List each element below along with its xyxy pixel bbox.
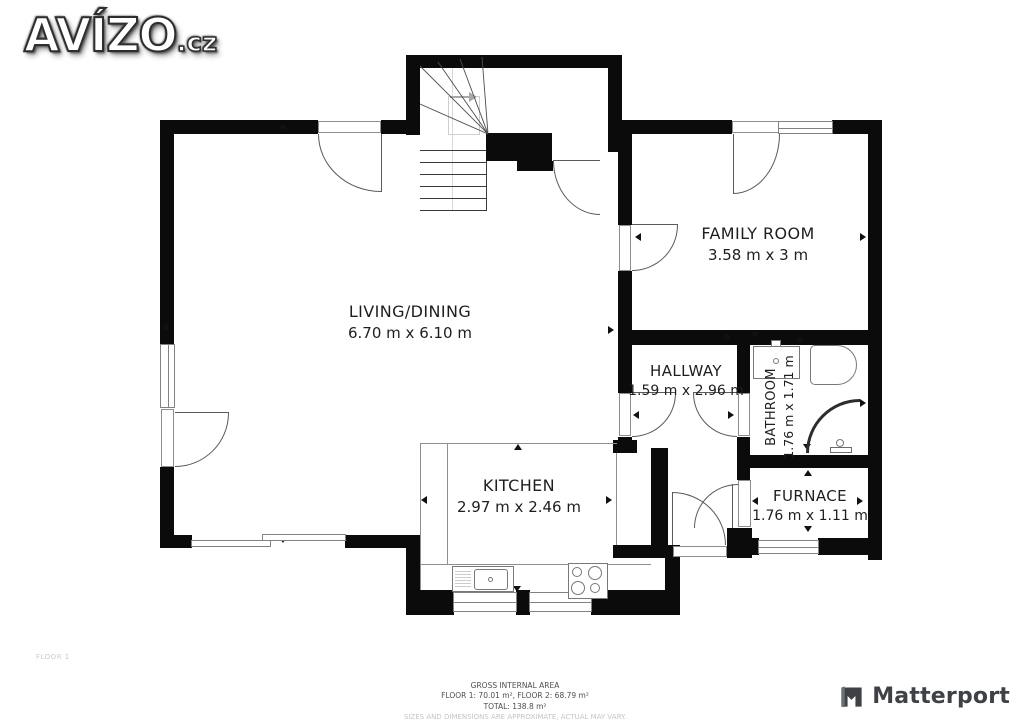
stove-burner [590, 583, 600, 593]
avizo-logo-text: AVÍZO [24, 8, 177, 62]
wall-segment [618, 120, 732, 134]
shower-door-arc [806, 399, 860, 453]
closet-wall [613, 545, 673, 558]
door-swing-arc [632, 393, 676, 437]
room-label-family: FAMILY ROOM 3.58 m x 3 m [608, 224, 908, 264]
stove-burner [588, 566, 602, 580]
dimension-marker [608, 326, 614, 334]
wall-segment [618, 330, 868, 345]
wall-segment [160, 120, 174, 344]
area-title: GROSS INTERNAL AREA [315, 681, 715, 690]
matterport-m-icon [838, 683, 865, 710]
faucet-knob-icon [836, 439, 844, 447]
window-sliding [191, 540, 271, 547]
closet-wall [613, 440, 637, 453]
matterport-logo: Matterport [838, 683, 1010, 710]
door-opening [673, 546, 727, 557]
wall-segment [160, 535, 192, 548]
dimension-marker [723, 333, 731, 339]
dimension-marker [279, 123, 287, 129]
room-name: FURNACE [660, 487, 960, 505]
avizo-logo-suffix: .cz [177, 28, 217, 58]
room-dims: 3.58 m x 3 m [608, 246, 908, 264]
window [160, 344, 175, 408]
area-total: TOTAL: 138.8 m² [315, 702, 715, 711]
stairs-winder-icon [420, 56, 520, 216]
dimension-marker [514, 444, 522, 450]
room-label-bathroom: BATHROOM 1.76 m x 1.71 m [750, 342, 810, 472]
dimension-marker [860, 399, 866, 407]
room-dims: 2.97 m x 2.46 m [369, 498, 669, 516]
door-swing-arc [693, 393, 737, 437]
window-sliding [262, 534, 346, 541]
drainboard-icon [455, 569, 471, 589]
wall-segment [517, 161, 553, 171]
dimension-marker [751, 332, 759, 338]
avizo-logo: AVÍZO.cz [24, 8, 217, 62]
room-name: BATHROOM [764, 342, 779, 472]
dimension-marker [162, 323, 168, 331]
area-floors: FLOOR 1: 70.01 m², FLOOR 2: 68.79 m² [315, 691, 715, 700]
sink-drain-icon [488, 577, 493, 582]
door-opening [318, 121, 381, 133]
counter-edge [420, 564, 651, 565]
room-label-kitchen: KITCHEN 2.97 m x 2.46 m [369, 476, 669, 516]
area-disclaimer: SIZES AND DIMENSIONS ARE APPROXIMATE, AC… [315, 713, 715, 722]
door-opening [619, 393, 631, 436]
window [778, 121, 833, 134]
wall-segment [516, 590, 530, 615]
room-name: LIVING/DINING [260, 302, 560, 321]
wall-segment [737, 538, 759, 555]
stove-burner [572, 567, 582, 577]
room-dims: 6.70 m x 6.10 m [260, 324, 560, 342]
door-opening [738, 393, 750, 436]
window [758, 540, 819, 554]
door-swing-arc [318, 134, 381, 192]
gross-area-block: GROSS INTERNAL AREA FLOOR 1: 70.01 m², F… [315, 681, 715, 722]
wall-segment [618, 120, 632, 225]
room-label-living: LIVING/DINING 6.70 m x 6.10 m [260, 302, 560, 342]
wall-segment [160, 120, 318, 134]
window [453, 592, 517, 612]
dimension-marker [804, 526, 812, 532]
door-opening [161, 409, 174, 467]
room-name: KITCHEN [369, 476, 669, 495]
room-name: FAMILY ROOM [608, 224, 908, 243]
wall-segment [406, 590, 454, 615]
wall-segment [818, 538, 882, 555]
door-swing-arc [553, 161, 600, 215]
stove-burner [571, 581, 585, 595]
floorplan-canvas: LIVING/DINING 6.70 m x 6.10 m FAMILY ROO… [0, 0, 1024, 724]
kitchen-zone-line [420, 443, 421, 590]
door-swing-arc [175, 413, 229, 467]
room-dims: 1.76 m x 1.71 m [781, 342, 796, 472]
door-swing-arc [733, 134, 780, 194]
matterport-label: Matterport [872, 684, 1010, 709]
faucet-icon [830, 447, 852, 453]
room-dims: 1.76 m x 1.11 m [660, 508, 960, 524]
floor-label: FLOOR 1 [36, 653, 70, 661]
room-label-furnace: FURNACE 1.76 m x 1.11 m [660, 487, 960, 524]
door-opening [732, 121, 779, 133]
door-leaf [381, 134, 382, 192]
